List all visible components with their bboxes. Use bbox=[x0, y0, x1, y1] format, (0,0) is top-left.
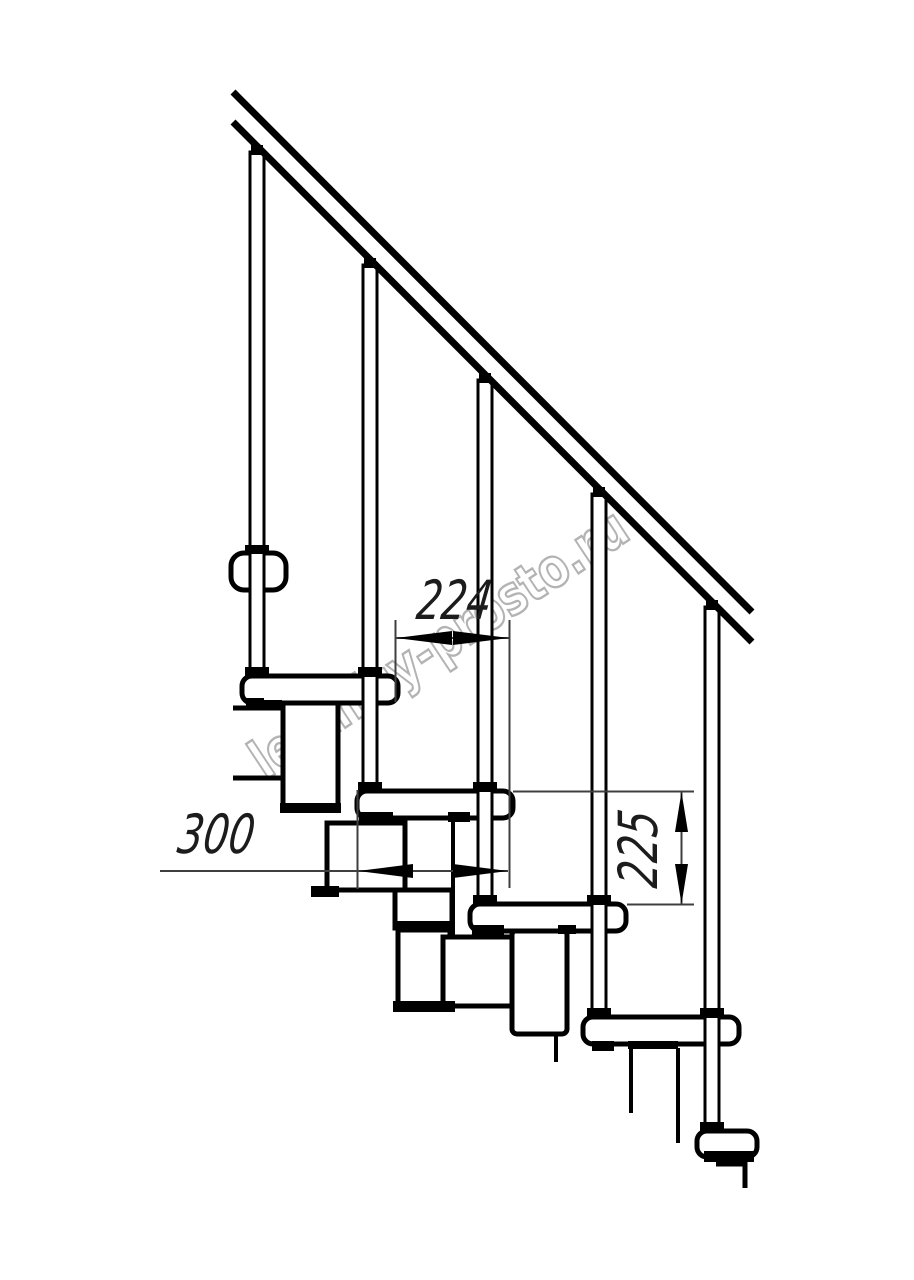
baluster-3-base-cap bbox=[473, 895, 497, 905]
step2-lower-module-flange bbox=[393, 1001, 455, 1012]
tread-5-mount bbox=[704, 1151, 754, 1162]
drawing-canvas: lestnicy-prosto.ru bbox=[0, 0, 914, 1280]
step3-module bbox=[512, 930, 567, 1034]
tread-2-mount-a bbox=[359, 812, 393, 823]
baluster-5-base-cap bbox=[700, 1122, 724, 1132]
step2-module-corner-block bbox=[311, 886, 339, 897]
baluster-4-rod bbox=[592, 494, 606, 1017]
baluster-5-collar-tread-4 bbox=[700, 1008, 724, 1018]
dim-224-label: 224 bbox=[413, 569, 496, 632]
baluster-3-rod bbox=[478, 380, 492, 904]
step2-side-module bbox=[443, 937, 519, 1006]
tread-4-mount-b bbox=[628, 1041, 678, 1049]
staircase-technical-drawing: lestnicy-prosto.ru bbox=[0, 0, 914, 1280]
baluster-1-rod bbox=[250, 152, 264, 676]
tread-1-mount-b bbox=[261, 700, 282, 710]
baluster-2-rod bbox=[363, 265, 377, 791]
step1-module bbox=[283, 700, 338, 808]
baluster-1-collar-tread-0 bbox=[245, 545, 269, 554]
baluster-4-base-cap bbox=[587, 1008, 611, 1018]
tread-3-mount-b bbox=[558, 925, 576, 934]
baluster-5-rod bbox=[705, 607, 719, 1131]
dim-225-label: 225 bbox=[607, 806, 670, 891]
baluster-1-base-cap bbox=[245, 667, 269, 677]
tread-2-mount-b bbox=[448, 812, 470, 822]
step2-module bbox=[327, 823, 405, 890]
tread-4-mount-a bbox=[592, 1041, 614, 1051]
dim-300-label: 300 bbox=[174, 803, 259, 866]
baluster-2-collar-tread-1 bbox=[358, 667, 382, 677]
baluster-3-collar-tread-2 bbox=[473, 782, 497, 792]
baluster-2-base-cap bbox=[358, 782, 382, 792]
tread-3-mount-a bbox=[472, 925, 504, 935]
baluster-4-collar-tread-3 bbox=[587, 895, 611, 905]
step1-module-flange bbox=[280, 803, 341, 813]
